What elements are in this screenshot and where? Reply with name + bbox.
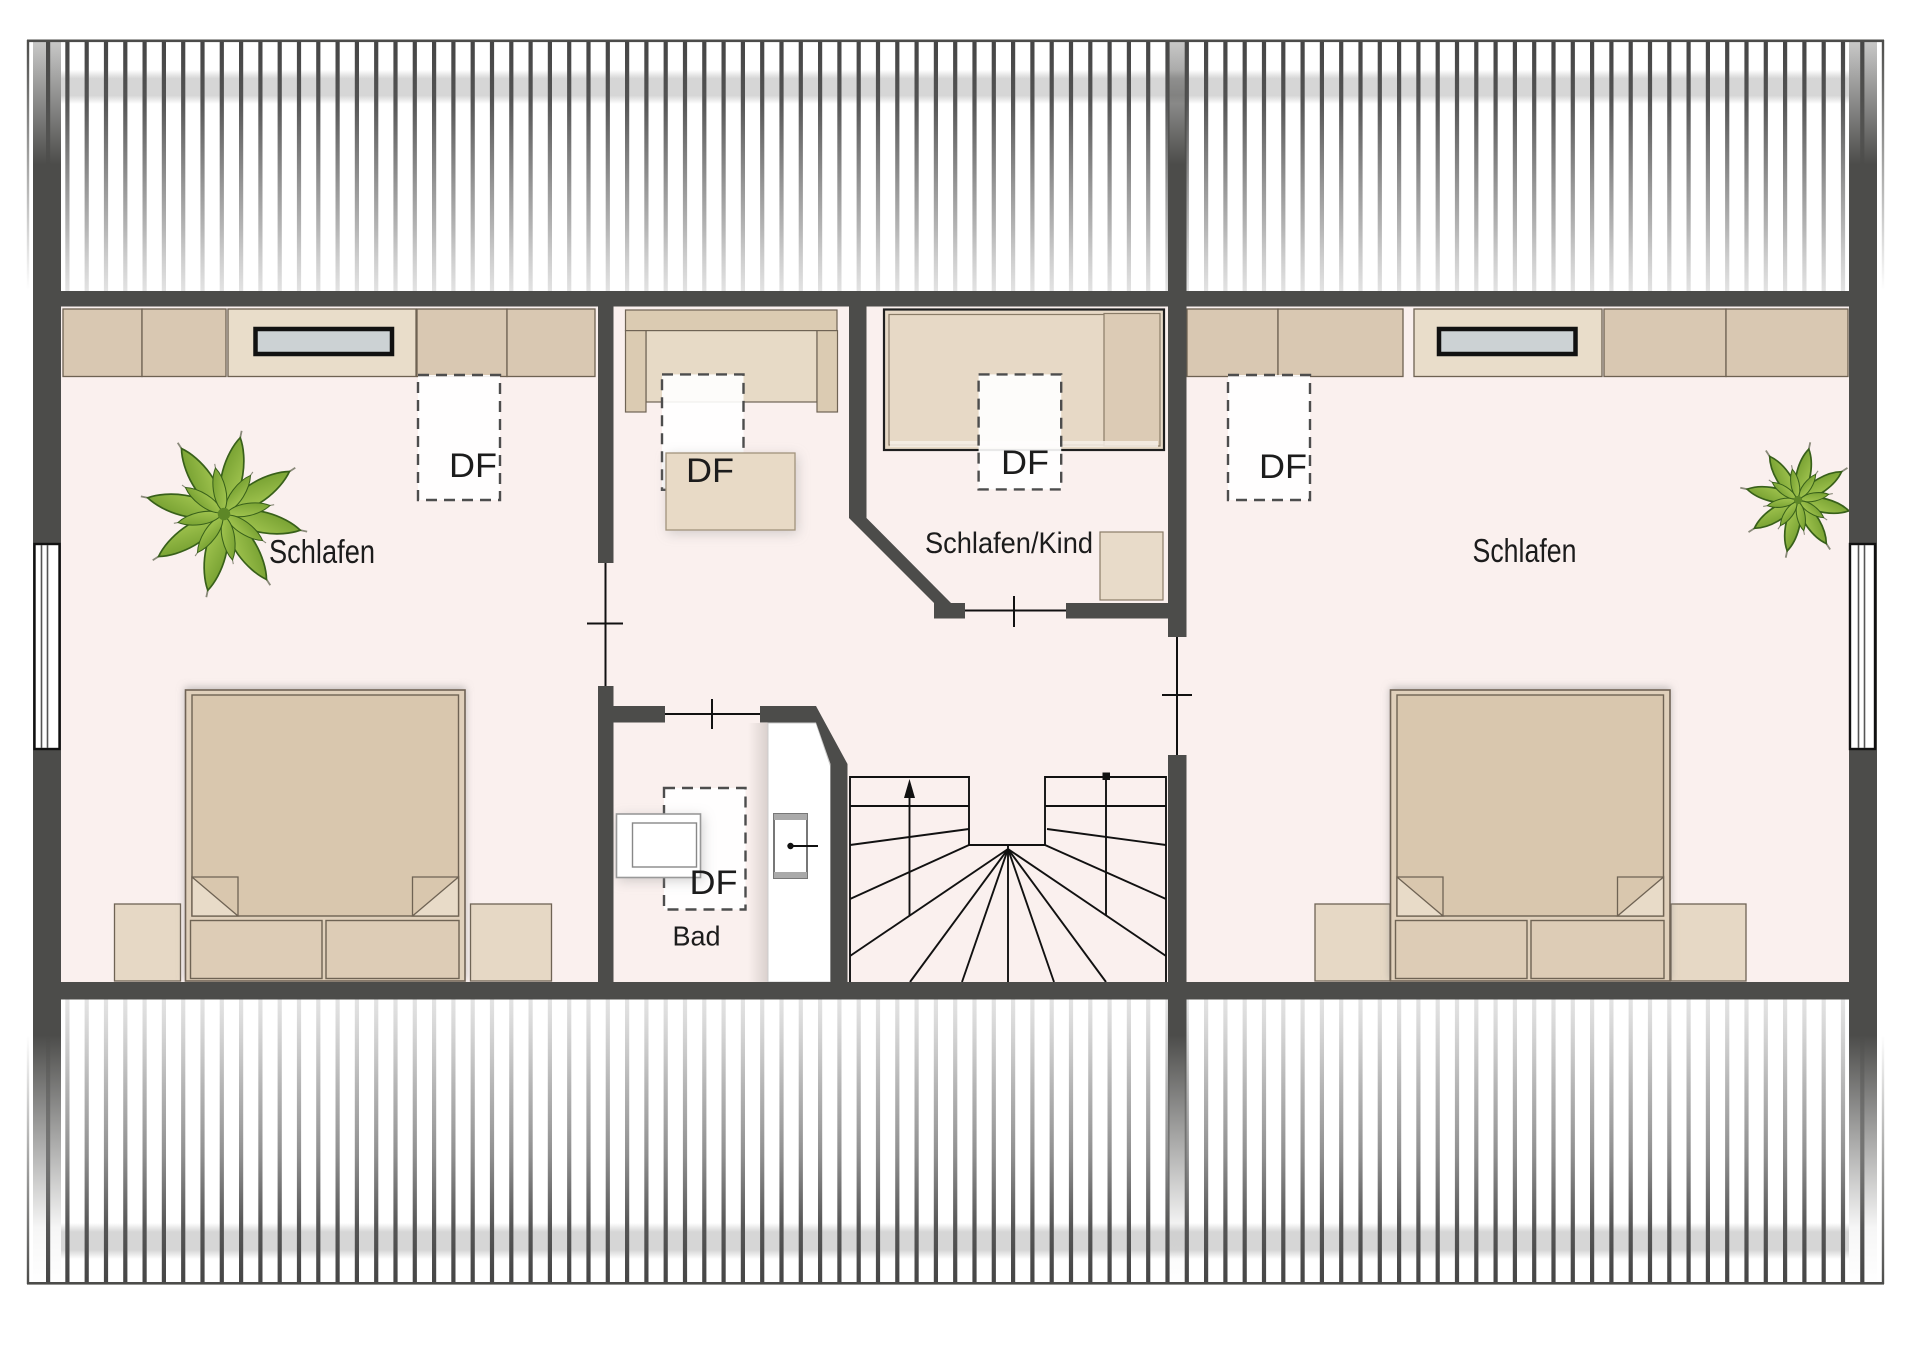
svg-text:DF: DF	[1001, 444, 1049, 482]
svg-text:Bad: Bad	[673, 921, 721, 952]
svg-text:DF: DF	[686, 452, 734, 490]
svg-text:Schlafen/Kind: Schlafen/Kind	[925, 527, 1093, 560]
svg-text:Schlafen: Schlafen	[269, 533, 375, 570]
svg-text:DF: DF	[690, 864, 738, 902]
svg-text:Schlafen: Schlafen	[1473, 532, 1577, 569]
svg-text:DF: DF	[449, 447, 497, 485]
svg-text:DF: DF	[1259, 448, 1307, 486]
